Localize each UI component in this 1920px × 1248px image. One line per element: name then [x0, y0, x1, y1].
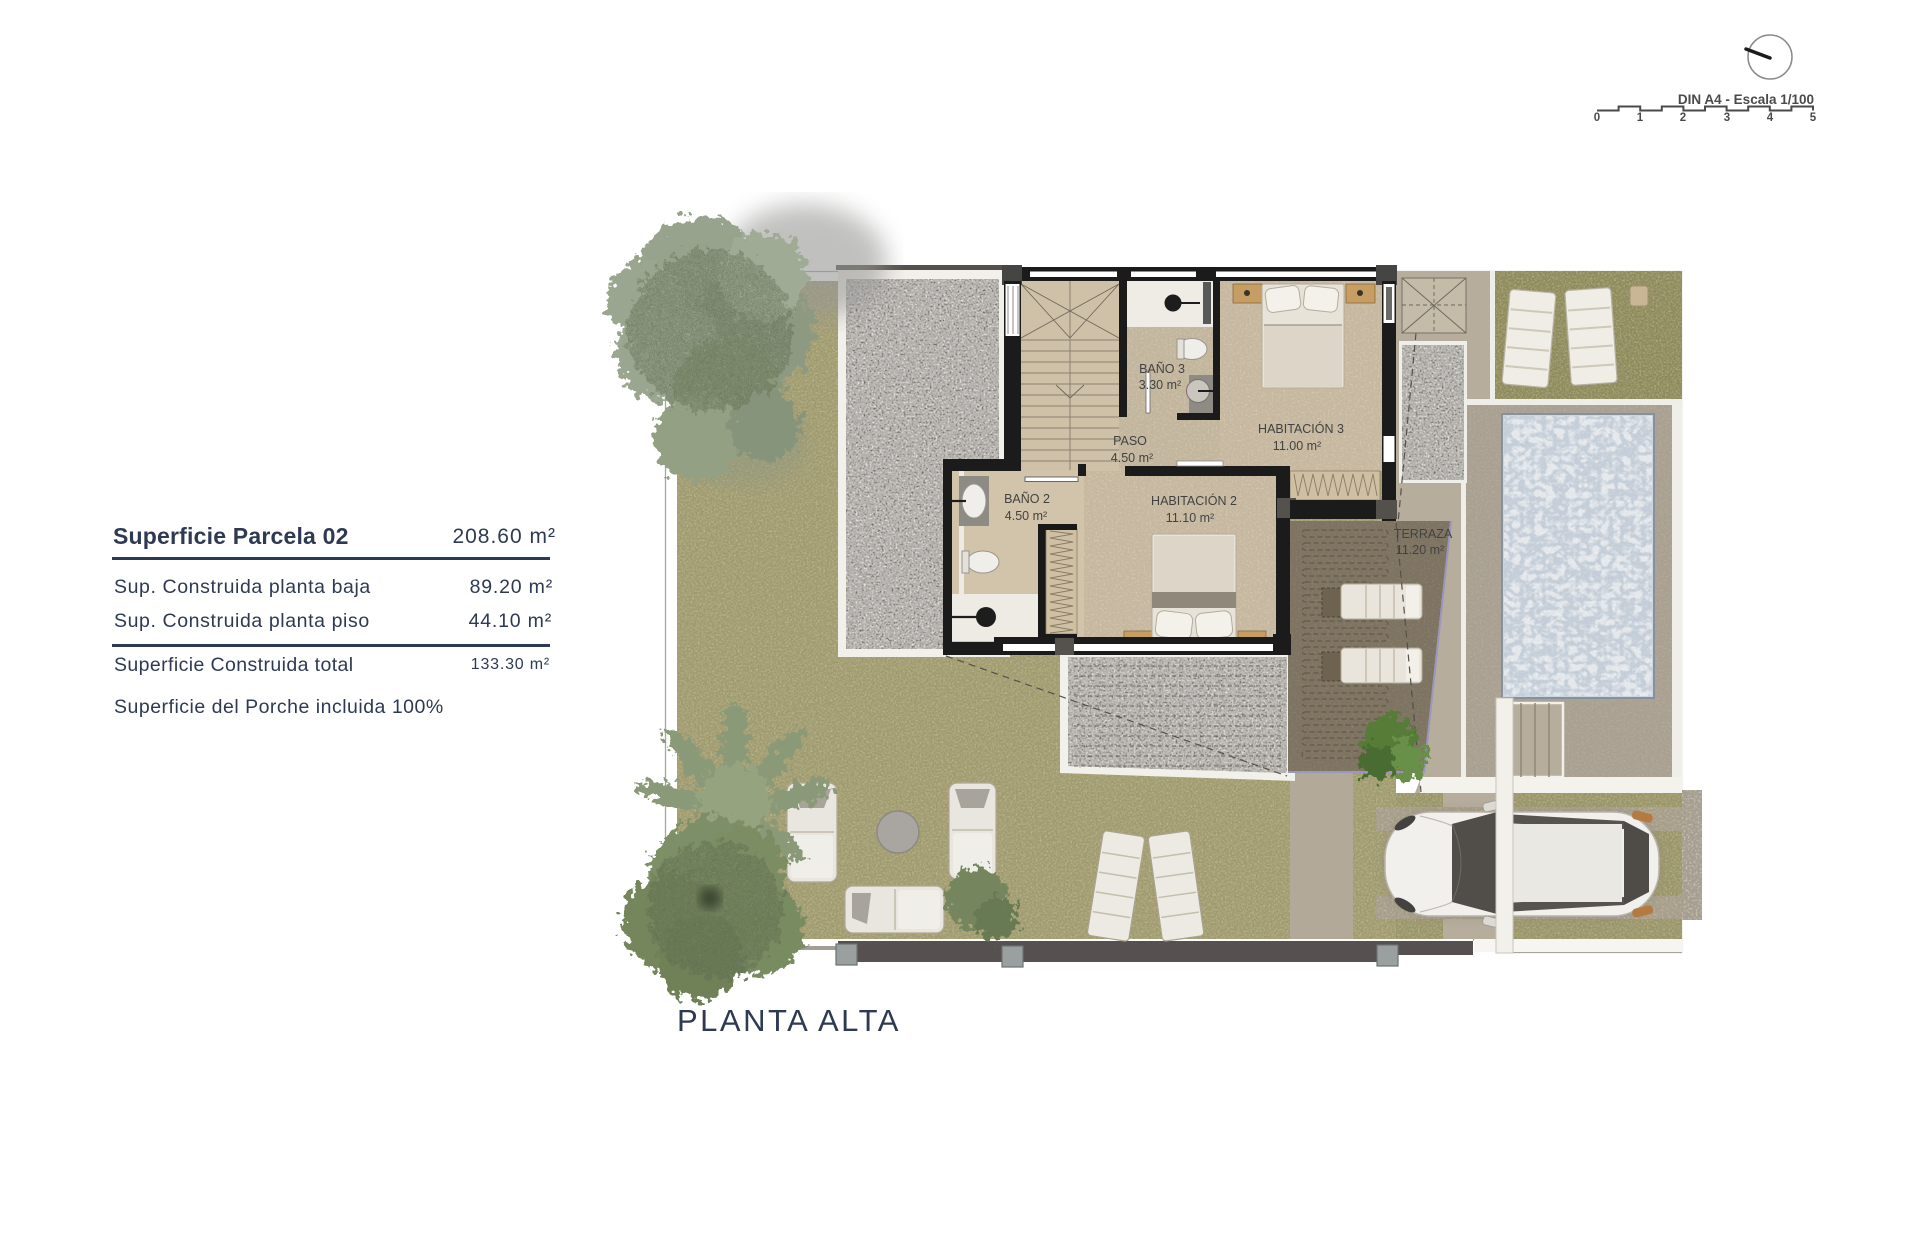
svg-text:BAÑO 2: BAÑO 2	[1004, 492, 1050, 506]
svg-text:DIN A4 - Escala 1/100: DIN A4 - Escala 1/100	[1678, 92, 1814, 107]
svg-text:4.50 m²: 4.50 m²	[1111, 451, 1153, 465]
svg-text:4: 4	[1767, 112, 1774, 124]
svg-text:Sup. Construida planta piso: Sup. Construida planta piso	[114, 610, 370, 632]
svg-text:89.20 m²: 89.20 m²	[470, 576, 553, 598]
svg-text:4.50 m²: 4.50 m²	[1005, 509, 1047, 523]
svg-text:208.60 m²: 208.60 m²	[452, 525, 556, 548]
svg-text:PLANTA ALTA: PLANTA ALTA	[677, 1003, 901, 1038]
svg-text:5: 5	[1810, 112, 1817, 124]
svg-text:HABITACIÓN 2: HABITACIÓN 2	[1151, 493, 1237, 508]
svg-text:11.20 m²: 11.20 m²	[1396, 543, 1444, 557]
svg-text:11.00 m²: 11.00 m²	[1273, 439, 1321, 453]
svg-text:44.10 m²: 44.10 m²	[469, 610, 552, 632]
svg-text:PASO: PASO	[1113, 434, 1147, 448]
svg-text:133.30 m²: 133.30 m²	[471, 656, 550, 673]
svg-text:TERRAZA: TERRAZA	[1394, 527, 1453, 541]
svg-text:0: 0	[1594, 112, 1600, 124]
svg-text:BAÑO 3: BAÑO 3	[1139, 362, 1185, 376]
svg-text:3.30 m²: 3.30 m²	[1139, 378, 1181, 392]
svg-text:HABITACIÓN 3: HABITACIÓN 3	[1258, 421, 1344, 436]
svg-text:Superficie Parcela 02: Superficie Parcela 02	[113, 523, 349, 549]
svg-text:Sup. Construida planta baja: Sup. Construida planta baja	[114, 576, 371, 598]
svg-text:2: 2	[1680, 112, 1686, 124]
svg-text:3: 3	[1724, 112, 1730, 124]
svg-text:Superficie del Porche incluida: Superficie del Porche incluida 100%	[114, 696, 444, 718]
svg-text:11.10 m²: 11.10 m²	[1166, 511, 1214, 525]
svg-text:Superficie Construida total: Superficie Construida total	[114, 654, 354, 676]
svg-text:1: 1	[1637, 112, 1644, 124]
